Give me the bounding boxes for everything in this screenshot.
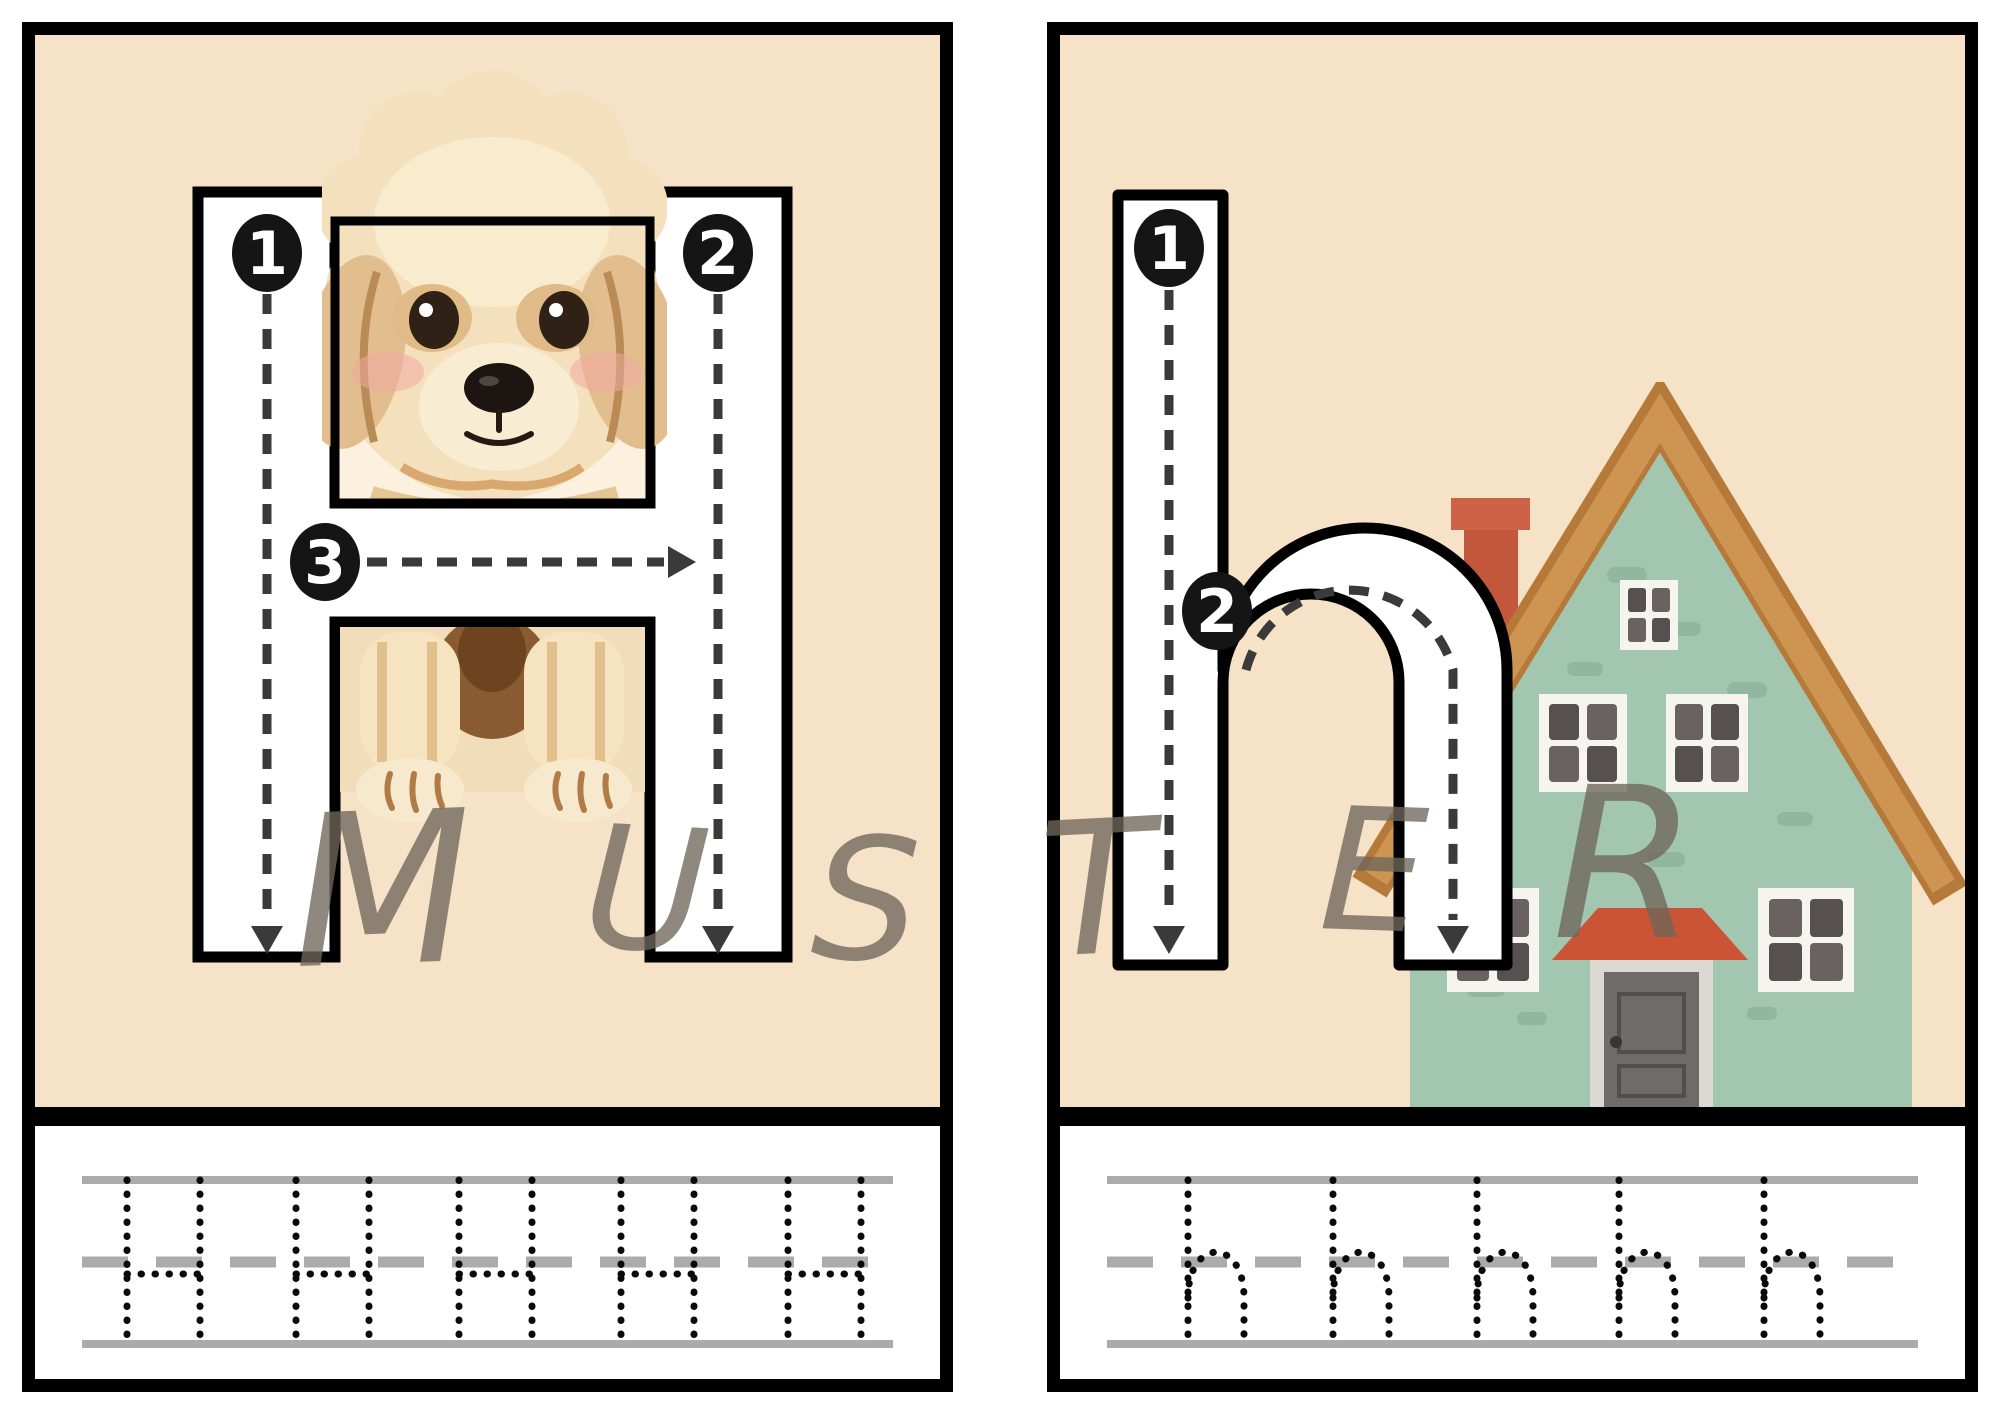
puppy-eye-right xyxy=(539,291,589,349)
puppy-lower-body xyxy=(340,612,645,822)
attic-window xyxy=(1620,580,1678,650)
house-chimney-cap xyxy=(1451,498,1530,530)
door-knob xyxy=(1610,1036,1622,1048)
stroke-2-number: 2 xyxy=(1196,577,1238,647)
window-mid-right xyxy=(1666,694,1748,792)
window-lower-right xyxy=(1758,888,1854,992)
puppy-leg-left xyxy=(360,632,460,772)
stroke-1-number: 1 xyxy=(246,219,288,289)
stroke-2-number: 2 xyxy=(697,219,739,289)
worksheet-page: { "page": { "background": "#ffffff", "ty… xyxy=(0,0,2000,1414)
puppy-blush-left xyxy=(352,352,424,392)
window-mid-left xyxy=(1539,694,1627,792)
puppy-leg-right xyxy=(524,632,624,772)
puppy-blush-right xyxy=(570,352,642,392)
puppy-nose xyxy=(464,363,534,413)
stroke-3-number: 3 xyxy=(304,528,346,598)
puppy-eye-left xyxy=(409,291,459,349)
tracing-card-lowercase-h: 1 2 xyxy=(1047,22,1978,1392)
card-lowercase-h-canvas: 1 2 xyxy=(1047,22,1978,1392)
tracing-card-uppercase-H: 1 2 3 xyxy=(22,22,953,1392)
card-uppercase-H-canvas: 1 2 3 xyxy=(22,22,953,1392)
puppy-illustration xyxy=(288,70,697,822)
stroke-1-number: 1 xyxy=(1148,214,1190,284)
